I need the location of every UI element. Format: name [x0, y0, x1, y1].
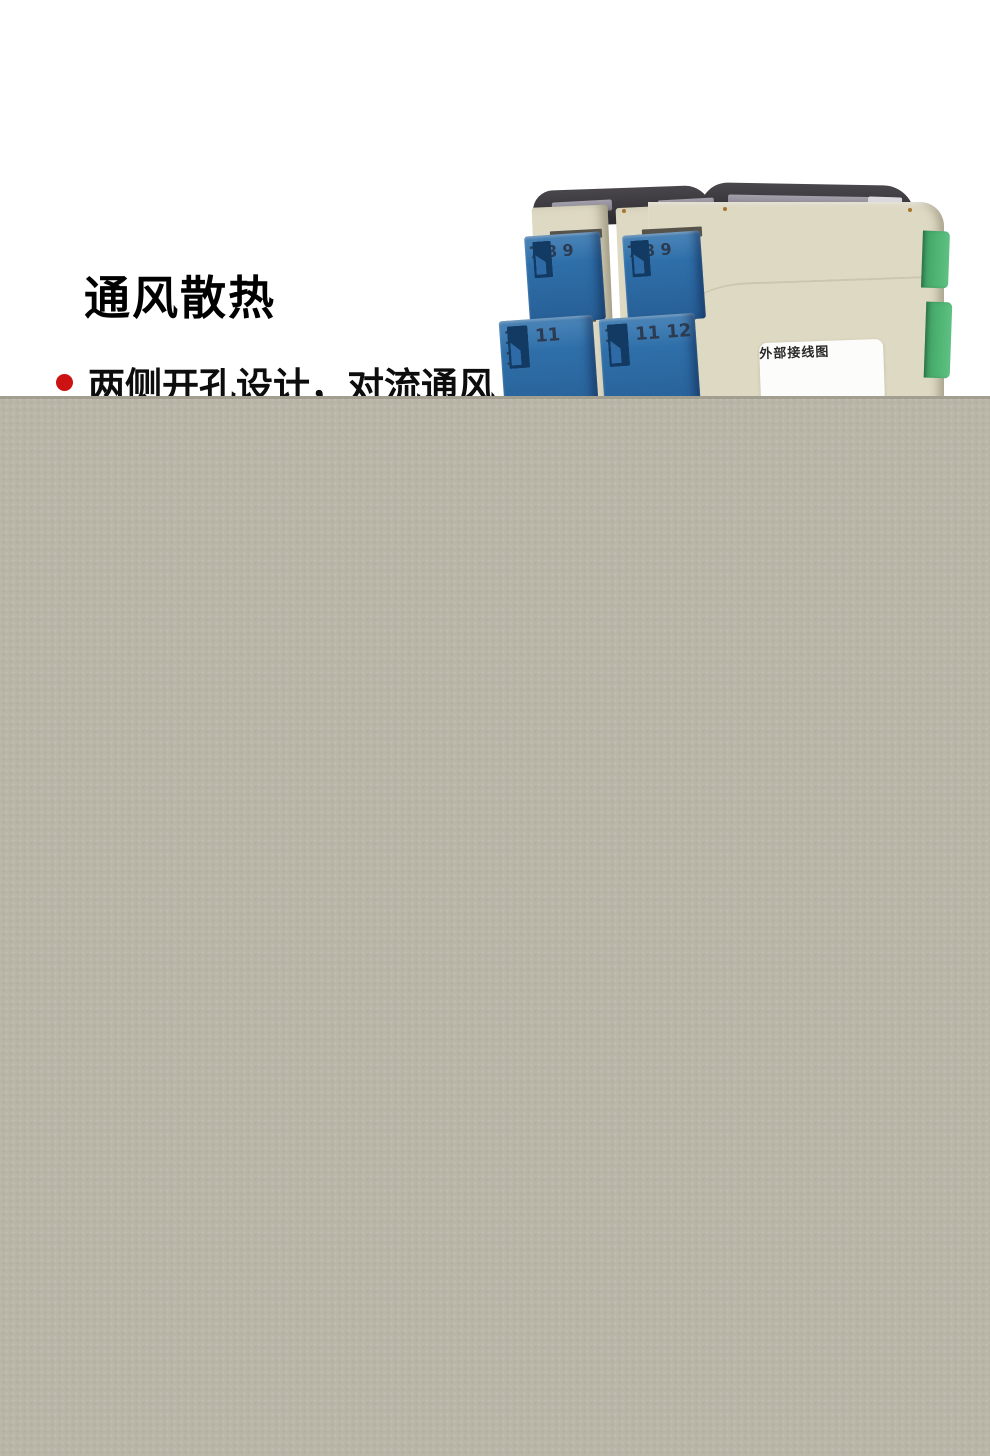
wiring-diagram-label-text: 外部接线图: [759, 345, 829, 362]
socket: [607, 324, 630, 367]
terminal-sockets: [622, 235, 638, 242]
product-photo: 7 8 9 7 8 9 10: [495, 182, 957, 422]
bullet-marker-icon: [56, 374, 73, 391]
terminal-block-789: 7 8 9: [622, 230, 706, 323]
terminal-sockets: [524, 236, 540, 243]
side-connector-green: [921, 231, 950, 289]
terminal-sockets: [599, 318, 615, 325]
screw-dot: [908, 208, 912, 212]
socket: [630, 240, 650, 277]
socket: [507, 325, 530, 368]
socket: [532, 241, 552, 278]
side-connector-green: [924, 302, 953, 379]
terminal-block-789: 7 8 9: [524, 231, 606, 324]
page: 7 8 9 7 8 9 10: [0, 0, 990, 1456]
terminal-sockets: [499, 320, 515, 327]
screw-dot: [622, 209, 626, 213]
terminal-number: 9: [660, 239, 672, 259]
terminal-number: 12: [666, 320, 692, 343]
gray-overlay: [0, 396, 990, 1456]
terminal-number: 9: [562, 240, 574, 260]
terminal-number: 11: [634, 322, 660, 345]
section-heading: 通风散热: [84, 272, 276, 325]
terminal-number: 11: [534, 324, 560, 347]
screw-dot: [723, 207, 727, 211]
